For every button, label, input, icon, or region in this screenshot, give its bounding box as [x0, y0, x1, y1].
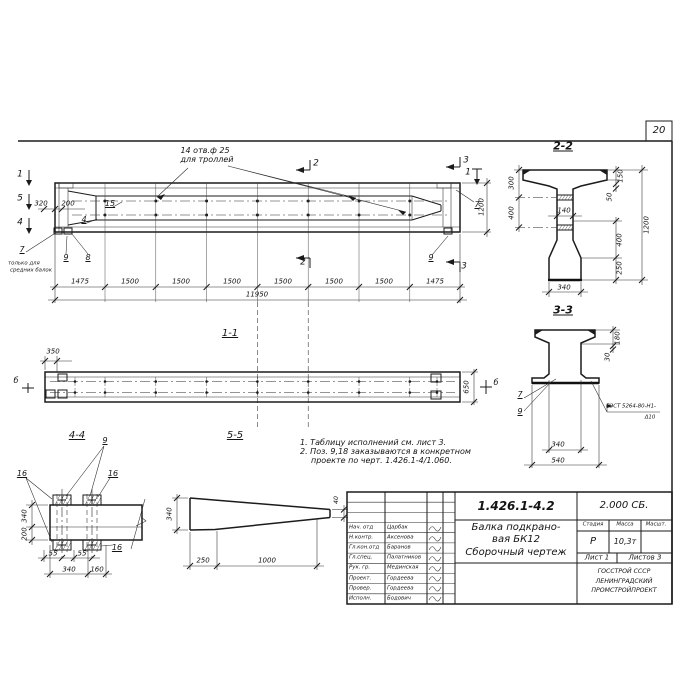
- tb-role: Нач. отд: [349, 525, 373, 530]
- tb-name: Царбак: [387, 525, 408, 530]
- dim-40: 40: [334, 496, 340, 504]
- tb-header-stage: Стадия: [583, 522, 604, 527]
- tb-org-line3: ПРОМСТРОЙПРОЕКТ: [591, 588, 656, 594]
- view-mark-1-right: 1: [465, 169, 471, 178]
- doc-number: 1.426.1-4.2: [477, 500, 554, 512]
- tb-header-scale: Масшт.: [646, 522, 667, 527]
- tb-role: Гл.кон.отд: [349, 545, 379, 550]
- tb-name: Баранов: [387, 545, 411, 550]
- sheet-frame: [18, 121, 672, 604]
- drawing-title-line2: вая БК12: [492, 535, 540, 545]
- tb-role: Проект.: [349, 576, 371, 581]
- pos-9-44: 9: [102, 437, 107, 445]
- pos-8: 8: [85, 254, 90, 262]
- pos-7-33: 7: [517, 391, 522, 399]
- dim-340-44: 340: [22, 509, 29, 522]
- dim-1200-main: 1200: [479, 198, 486, 216]
- pos-4: 4: [81, 216, 86, 224]
- dim-340-33: 340: [551, 442, 564, 449]
- section-2-2: [514, 165, 648, 297]
- section-mark-2-top: 2: [313, 160, 319, 169]
- doc-code: 2.000 СБ.: [600, 501, 649, 511]
- dim-340-22: 340: [557, 285, 570, 292]
- pos-16-top-right: 16: [108, 470, 118, 478]
- note-line-2: 2. Поз. 9,18 заказываются в конкретном: [300, 448, 471, 456]
- view-mark-5-left: 5: [17, 195, 23, 204]
- dim-30: 30: [605, 353, 612, 362]
- tb-name: Палатников: [387, 555, 421, 560]
- dim-segment: 1500: [223, 279, 241, 286]
- tb-name: Мединская: [387, 566, 419, 571]
- pos-7-left: 7: [19, 246, 24, 254]
- section-3-3-label: 3-3: [553, 305, 573, 316]
- dim-300: 300: [509, 176, 516, 189]
- dim-250: 250: [196, 558, 209, 565]
- dim-180: 180: [615, 331, 622, 344]
- dim-1000: 1000: [258, 558, 276, 565]
- tb-role: Гл.спец.: [349, 555, 372, 560]
- dim-segment: 1475: [426, 279, 444, 286]
- tb-name: Бодович: [387, 596, 411, 601]
- view-5-5-label: 5-5: [227, 431, 243, 441]
- tb-org-line1: ГОССТРОЙ СССР: [598, 569, 651, 575]
- tb-org-line2: ЛЕНИНГРАДСКИЙ: [596, 579, 653, 585]
- dim-320: 320: [34, 201, 47, 208]
- dim-55-a: 55: [49, 551, 58, 558]
- hole-note-line2: для троллей: [181, 156, 234, 164]
- dim-340-55: 340: [167, 507, 174, 520]
- drawing-title-line3: Сборочный чертеж: [465, 548, 566, 558]
- dim-1200-22: 1200: [644, 216, 651, 234]
- sheet-number: 20: [653, 126, 666, 136]
- mark-b-left: б: [14, 377, 19, 385]
- pos-9-33: 9: [517, 408, 522, 416]
- dim-400-right: 400: [617, 233, 624, 246]
- section-mark-2-bottom: 2: [300, 259, 306, 268]
- view-1-1-label: 1-1: [222, 329, 238, 339]
- tb-sheet: Лист 1: [585, 555, 609, 562]
- dim-350: 350: [46, 349, 59, 356]
- tb-name: Гордеева: [387, 576, 414, 581]
- pos-7-note-line1: только для: [8, 261, 40, 266]
- tb-name: Гордеева: [387, 586, 414, 591]
- dim-250-22: 250: [617, 261, 624, 274]
- note-line-3: проекте по черт. 1.426.1-4/1.060.: [311, 457, 452, 465]
- section-2-2-label: 2-2: [553, 141, 573, 152]
- dim-340-44-bottom: 340: [62, 567, 75, 574]
- weld-note-line1: ГОСТ 5264-80-Н1-: [606, 404, 656, 409]
- dim-140: 140: [557, 208, 570, 215]
- dim-55-b: 55: [78, 551, 87, 558]
- mark-b-right: б: [494, 379, 499, 387]
- tb-stage-value: Р: [590, 537, 596, 547]
- view-mark-4-left: 4: [17, 219, 23, 228]
- tb-role: Исполн.: [349, 596, 372, 601]
- plan-holes: [74, 377, 439, 397]
- dim-650: 650: [464, 380, 471, 393]
- dim-segment: 1500: [121, 279, 139, 286]
- pos-15: 15: [105, 200, 115, 208]
- hole-note-line1: 14 отв.ф 25: [180, 147, 229, 155]
- tb-header-mass: Масса: [616, 522, 633, 527]
- dim-total-11950: 11950: [246, 292, 268, 299]
- tb-role: Рук. гр.: [349, 566, 370, 571]
- view-4-4-label: 4-4: [69, 431, 85, 441]
- pos-9-right: 9: [428, 254, 433, 262]
- drawing-sheet: 20 14 отв.ф 25 для троллей 1 5 4 320 200…: [0, 0, 700, 700]
- dim-segment: 1500: [172, 279, 190, 286]
- section-3-3: [524, 326, 660, 468]
- view-1-1: [22, 356, 492, 405]
- tb-role: Н.контр.: [349, 535, 373, 540]
- dim-200-44: 200: [22, 527, 29, 540]
- pos-7-note-line2: средних балок: [10, 268, 52, 273]
- dim-540: 540: [551, 458, 564, 465]
- dim-segment: 1500: [375, 279, 393, 286]
- tb-mass-value: 10,3т: [614, 538, 636, 546]
- pos-16-top-left: 16: [17, 470, 27, 478]
- note-line-1: 1. Таблицу исполнений см. лист 3.: [300, 439, 446, 447]
- dim-segment: 1475: [71, 279, 89, 286]
- tb-name: Аксенова: [387, 535, 414, 540]
- dim-200: 200: [61, 201, 74, 208]
- pos-9-left: 9: [63, 254, 68, 262]
- dim-400-left: 400: [509, 206, 516, 219]
- dim-segment: 1500: [325, 279, 343, 286]
- dim-160: 160: [90, 567, 103, 574]
- section-mark-3-bottom: 3: [461, 263, 467, 272]
- view-mark-1-left: 1: [17, 171, 23, 180]
- dim-segment: 1500: [274, 279, 292, 286]
- section-mark-3-top: 3: [463, 157, 469, 166]
- dim-50: 50: [607, 193, 614, 202]
- tb-role: Провер.: [349, 586, 371, 591]
- weld-note-line2: Δ10: [645, 415, 656, 420]
- dim-150: 150: [618, 169, 625, 182]
- drawing-title-line1: Балка подкрано-: [471, 523, 560, 533]
- pos-16-bottom: 16: [112, 544, 122, 552]
- view-4-4: [26, 446, 146, 578]
- tb-sheets: Листов 3: [629, 555, 662, 562]
